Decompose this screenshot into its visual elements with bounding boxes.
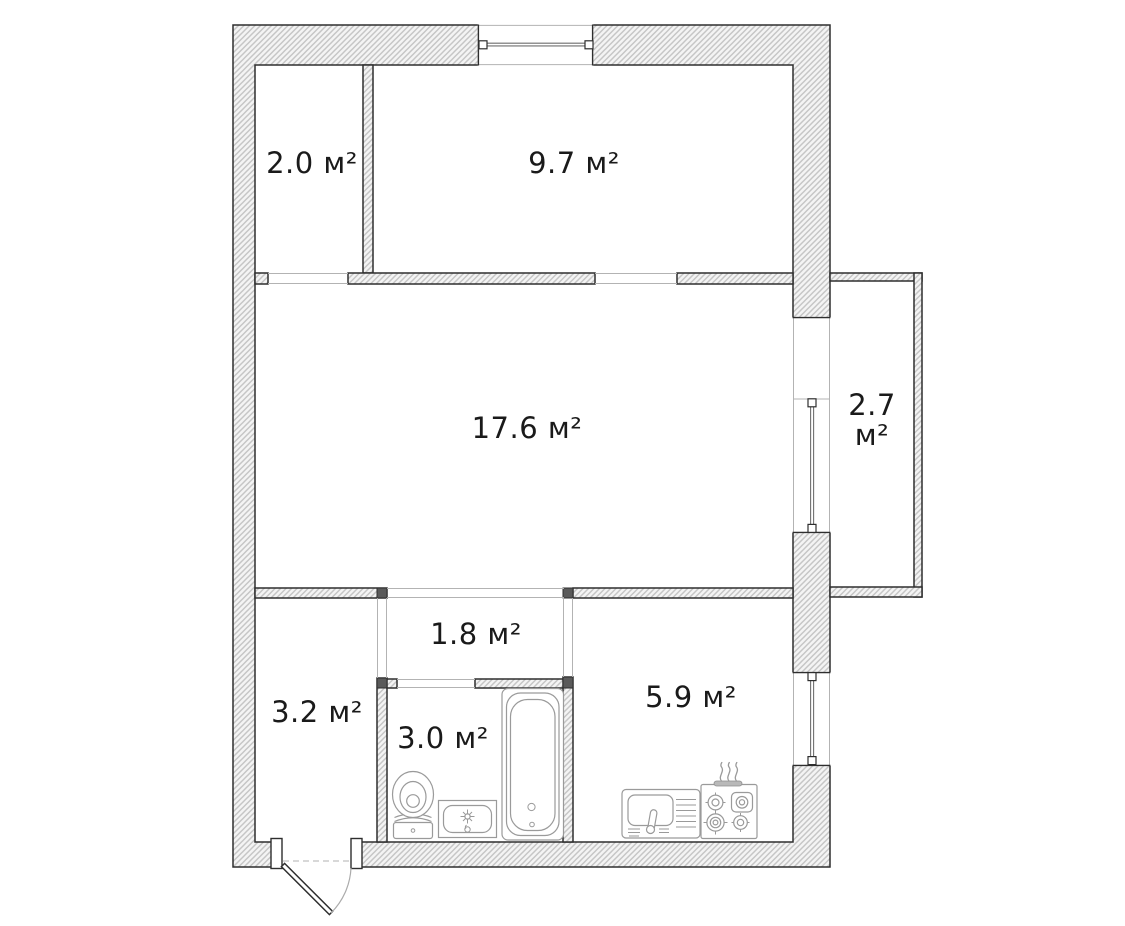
area-label-kitchen: 5.9 м² [645,680,737,714]
steam-icon [720,763,737,782]
area-label-corridor: 1.8 м² [430,617,522,651]
balcony-door-opening [792,317,831,533]
floor-plan: 2.0 м² 9.7 м² 17.6 м² 2.7 м² 3.2 м² 1.8 … [0,0,1125,926]
toilet-icon [393,772,434,839]
area-label-living-room: 17.6 м² [472,411,583,445]
area-label-balcony: 2.7 м² [837,390,907,450]
area-label-bathroom: 3.0 м² [397,721,489,755]
top-window-icon [478,24,593,67]
floor-plan-svg [0,0,1125,926]
area-label-hallway: 3.2 м² [271,695,363,729]
bathroom-sink-icon [439,801,497,838]
stove-icon [701,781,757,839]
kitchen-sink-icon [622,790,700,839]
bathtub-icon [502,689,564,841]
area-label-bedroom: 9.7 м² [528,146,620,180]
kitchen-window-icon [792,672,831,766]
entrance-door-icon [271,839,362,915]
area-label-storage: 2.0 м² [266,146,358,180]
